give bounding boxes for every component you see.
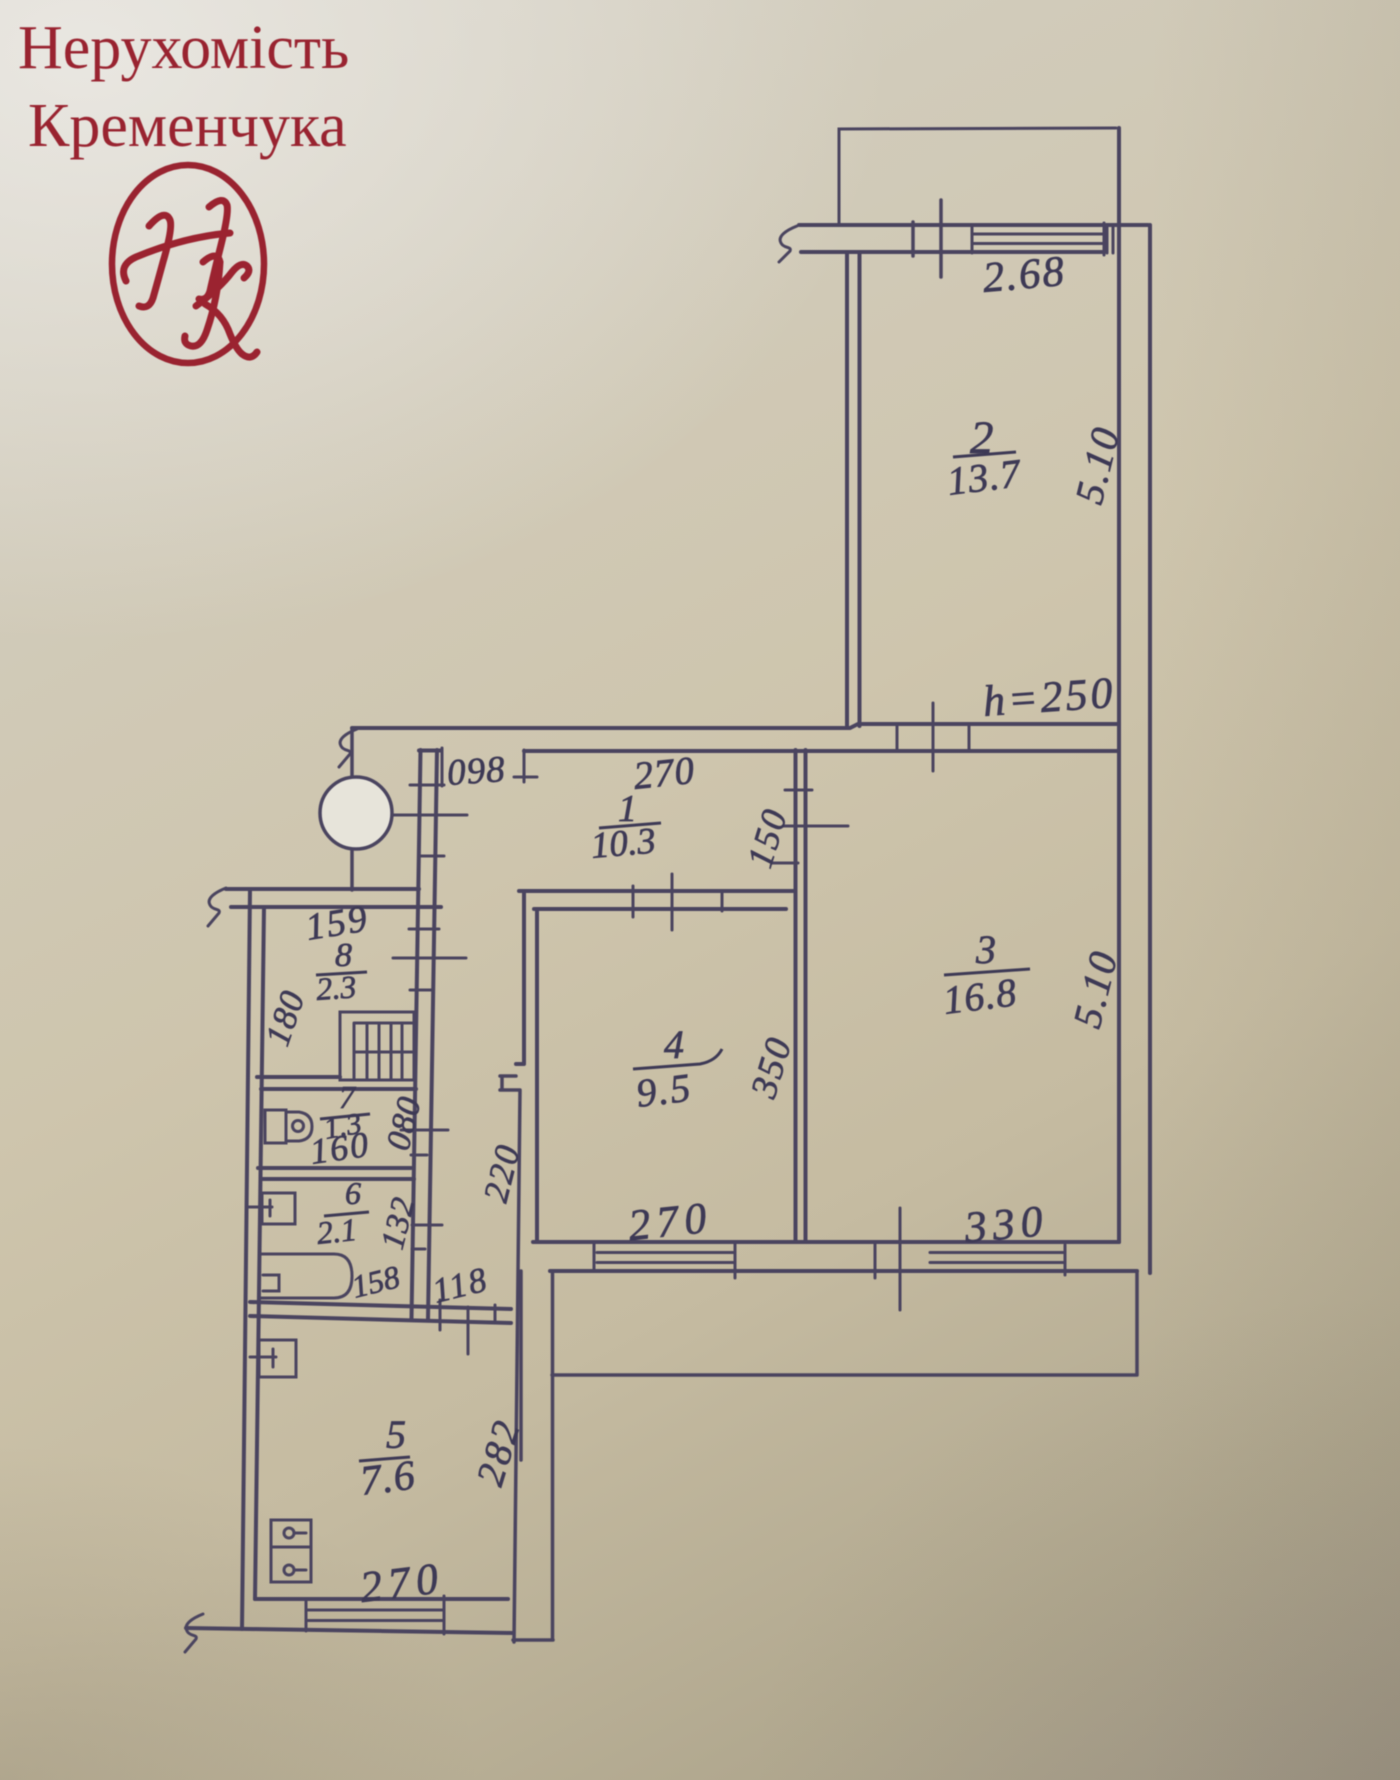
svg-text:2.1: 2.1	[315, 1211, 359, 1251]
svg-text:330: 330	[962, 1196, 1051, 1252]
svg-text:282: 282	[468, 1414, 529, 1491]
svg-text:180: 180	[258, 985, 313, 1050]
svg-text:158: 158	[348, 1258, 403, 1305]
svg-text:132: 132	[375, 1193, 423, 1253]
svg-text:270: 270	[631, 749, 697, 798]
svg-text:5: 5	[386, 1412, 406, 1457]
svg-text:118: 118	[429, 1259, 493, 1310]
svg-text:270: 270	[357, 1553, 446, 1612]
svg-text:10.3: 10.3	[589, 820, 657, 866]
svg-text:Кременчука: Кременчука	[28, 92, 347, 160]
svg-text:098: 098	[446, 749, 507, 794]
svg-text:9.5: 9.5	[634, 1064, 695, 1115]
svg-text:3: 3	[975, 927, 996, 972]
svg-text:2.3: 2.3	[315, 968, 357, 1007]
svg-text:2.68: 2.68	[981, 248, 1068, 302]
svg-text:Нерухомість: Нерухомість	[18, 14, 349, 82]
svg-text:h=250: h=250	[981, 668, 1117, 726]
svg-text:080: 080	[380, 1093, 429, 1154]
svg-text:7.6: 7.6	[358, 1453, 419, 1505]
svg-text:13.7: 13.7	[945, 450, 1025, 504]
svg-text:16.8: 16.8	[941, 969, 1020, 1023]
svg-text:160: 160	[308, 1124, 373, 1172]
svg-text:6: 6	[345, 1175, 361, 1211]
svg-text:4: 4	[664, 1022, 684, 1067]
svg-text:350: 350	[743, 1032, 800, 1104]
svg-text:270: 270	[626, 1193, 715, 1251]
